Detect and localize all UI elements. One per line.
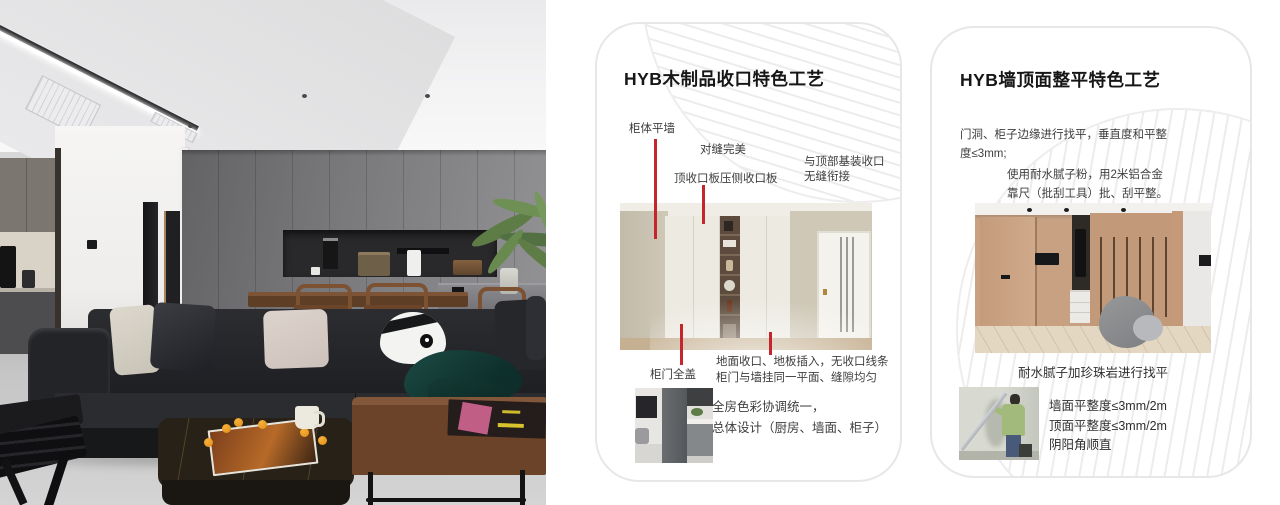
stone-coffee-table-front [162,480,350,505]
shelf [720,254,740,256]
table-frame-bar [366,498,526,502]
hanging-clothes [1075,229,1086,277]
kitchen-upper-cabinets [0,158,57,235]
para-putty-line1: 使用耐水腻子粉，用2米铝合金 [1007,169,1163,181]
magazine-cover-art [458,402,492,435]
note-floor-finish: 地面收口、地板插入，无收口线条 [716,353,889,369]
herringbone-floor [975,326,1211,353]
wardrobe-groove-handle [1152,237,1154,317]
black-leather-pillow [150,302,216,372]
mini-sofa [635,428,649,444]
power-track [397,248,449,254]
shelf-box-decor [723,240,736,247]
closet-drawers [1070,290,1092,323]
annotation-line [680,324,683,365]
worker-mini-photo [959,387,1039,460]
shelf-frame-decor [724,221,733,231]
interior-mini-photo [635,388,713,463]
living-room-photo [0,0,546,505]
shelf [720,234,740,236]
panda-eye-highlight [425,338,429,342]
shelf [720,294,740,296]
callout-top-board: 顶收口板压侧收口板 [674,170,778,186]
kitchen-appliance [22,270,35,288]
card1-title: HYB木制品收口特色工艺 [624,66,824,91]
wall-switch [87,240,97,249]
wooden-radio [453,260,482,275]
shelf-vase-decor [726,260,733,271]
annotation-line [769,332,772,355]
para-putty-line2: 靠尺（批刮工具）批、刮平整。 [1007,188,1168,200]
mini-gray-cabinet [662,388,687,463]
bullet-ceiling-flatness: 顶面平整度≤3mm/2m [1049,415,1167,434]
capsule-coffee-machine [407,250,421,276]
annotation-line [702,185,705,224]
pouf [1133,315,1163,341]
kumquat [204,438,213,447]
dining-table [248,292,468,307]
hall-wood-door [980,217,1037,331]
blush-pillow [263,309,329,369]
para-leveling: 门洞、柜子边缘进行找平，垂直度和平整 度≤3mm; [960,126,1200,164]
para-putty: 使用耐水腻子粉，用2米铝合金 靠尺（批刮工具）批、刮平整。 [1007,166,1217,204]
mini-plant [691,408,703,416]
downlight [425,94,430,98]
bullet-corners-straight: 阴阳角顺直 [1049,434,1112,453]
magazine-dark [447,399,546,438]
photo-caption: 耐水腻子加珍珠岩进行找平 [975,362,1211,381]
dark-door [143,202,158,310]
summary-color-unity: 全房色彩协调统一， [712,396,825,415]
textured-white-wall [1183,211,1211,333]
wall-coffee-grinder [323,238,338,269]
magazine-subtitle-text [502,410,520,414]
coffee-bar-niche [283,230,497,277]
shelf-bowl-decor [724,280,735,291]
drawer-seam [1070,312,1092,313]
annotation-line [654,139,657,239]
wall-decor [1199,255,1211,266]
render-light-reflection [650,298,872,350]
downlight [1064,208,1069,212]
card-wood-finish-craft: HYB木制品收口特色工艺 柜体平墙 对缝完美 顶收口板压侧收口板 与顶部基装收口… [595,22,902,482]
wardrobe-groove-handle [1100,237,1102,317]
mini-kitchen-upper [687,388,713,406]
white-mug [295,406,319,429]
black-pillow-edge [526,296,546,360]
coffee-machine [0,246,16,288]
mini-kitchen-lower [687,424,713,456]
drawer-seam [1070,302,1092,303]
intercom-panel [1035,253,1059,265]
kumquat [234,418,243,427]
wardrobe-groove-handle [1165,237,1167,317]
callout-ceiling-join-2: 无缝衔接 [804,168,850,184]
downlight [1121,208,1126,212]
callout-ceiling-join-1: 与顶部基装收口 [804,153,885,169]
door-handle [823,289,827,295]
callout-seam-perfect: 对缝完美 [700,141,746,157]
mini-floor [635,444,662,463]
kumquat [300,428,309,437]
downlight [188,124,193,128]
summary-overall-design: 总体设计（厨房、墙面、柜子） [712,417,887,436]
brass-cup-shelf [358,252,390,276]
kumquat [318,436,327,445]
step-stool [1019,444,1032,457]
note-flush-wall: 柜门与墙挂同一平面、缝隙均匀 [716,369,877,385]
downlight [302,94,307,98]
door-handle [1001,275,1010,279]
callout-cabinet-flush: 柜体平墙 [629,120,675,136]
kumquat [222,424,231,433]
wood-hallway-photo [975,203,1211,353]
mini-tv [636,396,657,418]
open-closet [1072,215,1090,298]
worker-body [1002,404,1025,436]
downlight [1027,208,1032,212]
shelf [720,274,740,276]
card2-title: HYB墙顶面整平特色工艺 [960,67,1160,92]
para-leveling-line2: 度≤3mm; [960,148,1007,160]
card-wall-ceiling-leveling: HYB墙顶面整平特色工艺 门洞、柜子边缘进行找平，垂直度和平整 度≤3mm; 使… [930,26,1252,478]
kitchen-cabinet-edge [55,148,61,354]
bullet-wall-flatness: 墙面平整度≤3mm/2m [1049,395,1167,414]
mini-kitchen-floor [687,456,713,463]
white-cup [311,267,320,275]
para-leveling-line1: 门洞、柜子边缘进行找平，垂直度和平整 [960,129,1167,141]
kumquat [258,420,267,429]
cabinet-render-image [620,203,872,350]
page: HYB木制品收口特色工艺 柜体平墙 对缝完美 顶收口板压侧收口板 与顶部基装收口… [0,0,1280,505]
magazine-title-text [498,423,524,428]
callout-full-cover-door: 柜门全盖 [650,366,696,382]
